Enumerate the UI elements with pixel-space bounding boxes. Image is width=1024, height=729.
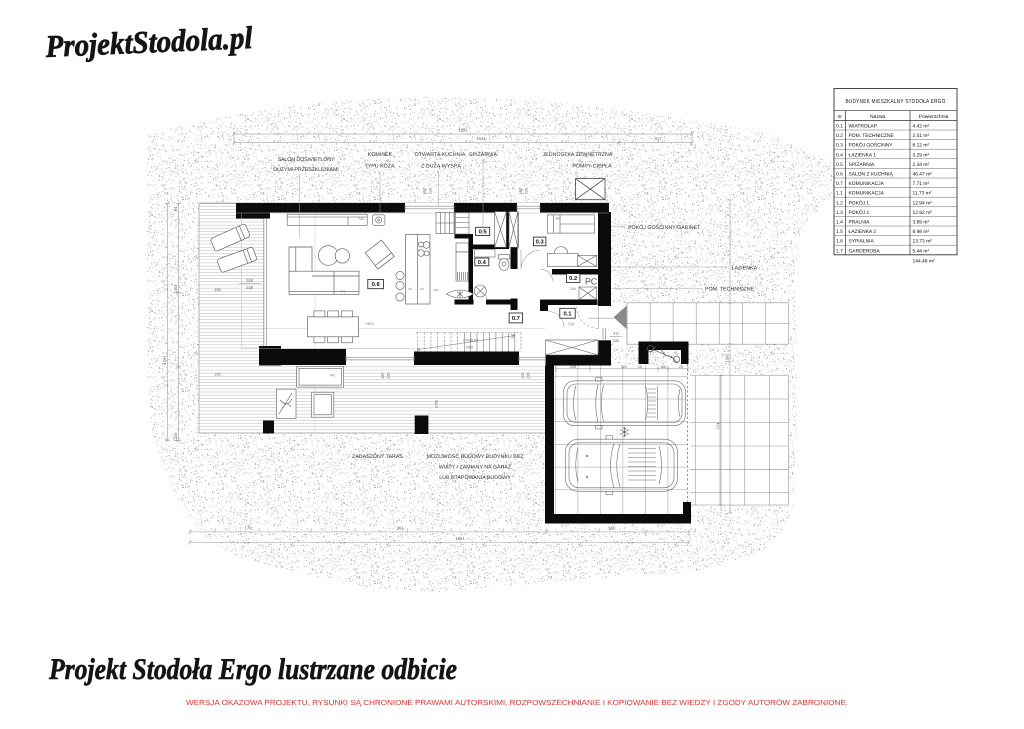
svg-text:0.1: 0.1 (836, 124, 843, 130)
svg-text:303: 303 (555, 217, 561, 221)
svg-text:8.12 m²: 8.12 m² (913, 143, 930, 149)
svg-text:POKÓJ GOŚCINNY: POKÓJ GOŚCINNY (849, 142, 894, 149)
svg-text:521: 521 (621, 365, 627, 369)
svg-text:BUDYNEK MIESZKALNY STODOŁA ERG: BUDYNEK MIESZKALNY STODOŁA ERGO (846, 98, 946, 105)
svg-text:4,0: 4,0 (613, 332, 618, 336)
svg-text:nr: nr (837, 114, 842, 120)
svg-text:1291: 1291 (162, 355, 167, 365)
svg-text:0.6: 0.6 (836, 172, 843, 178)
svg-text:100: 100 (433, 288, 439, 292)
svg-text:OTWARTA KUCHNIA: OTWARTA KUCHNIA (415, 152, 466, 158)
svg-text:2755: 2755 (435, 400, 439, 408)
svg-text:1.5: 1.5 (836, 229, 843, 235)
svg-text:29,5: 29,5 (466, 346, 473, 350)
svg-text:46.47 m²: 46.47 m² (913, 172, 933, 178)
svg-text:749,5: 749,5 (365, 322, 374, 326)
svg-text:1295: 1295 (725, 353, 730, 363)
svg-text:20: 20 (638, 365, 642, 369)
svg-text:144.48 m²: 144.48 m² (913, 259, 935, 265)
svg-text:225: 225 (387, 372, 391, 378)
svg-text:0.7: 0.7 (512, 315, 520, 322)
svg-text:3.89 m²: 3.89 m² (913, 220, 930, 226)
svg-text:Projekt Stodoła Ergo lustrzane: Projekt Stodoła Ergo lustrzane odbicie (48, 653, 457, 686)
svg-text:0.3: 0.3 (536, 239, 545, 246)
svg-text:ŁAZIENKA 1: ŁAZIENKA 1 (849, 152, 877, 158)
svg-text:710: 710 (568, 322, 575, 327)
svg-text:538: 538 (246, 278, 253, 283)
svg-text:1.4: 1.4 (836, 220, 843, 226)
svg-text:JEDNOSTKA ZEWNĘTRZNA: JEDNOSTKA ZEWNĘTRZNA (543, 152, 613, 158)
svg-text:2.34 m²: 2.34 m² (913, 162, 930, 168)
svg-text:POKÓJ 2: POKÓJ 2 (849, 209, 870, 216)
svg-text:5.44 m²: 5.44 m² (913, 248, 930, 254)
svg-text:774: 774 (716, 422, 721, 429)
svg-text:225: 225 (613, 339, 619, 343)
svg-text:225: 225 (525, 188, 529, 194)
svg-text:0.4: 0.4 (836, 152, 843, 158)
svg-text:0.3: 0.3 (836, 143, 843, 149)
svg-text:KOMUNIKACJA: KOMUNIKACJA (849, 181, 885, 187)
svg-text:POM. TECHNICZNE: POM. TECHNICZNE (849, 133, 895, 139)
svg-text:1851: 1851 (455, 536, 465, 541)
svg-text:TYPU KOZA: TYPU KOZA (364, 164, 394, 170)
svg-text:GARDEROBA: GARDEROBA (849, 248, 881, 254)
svg-text:1.3: 1.3 (836, 210, 843, 216)
svg-text:SALON DOŚWIETLONY: SALON DOŚWIETLONY (278, 156, 335, 163)
svg-text:100: 100 (521, 372, 525, 378)
svg-text:SALON Z KUCHNIĄ: SALON Z KUCHNIĄ (849, 172, 894, 178)
svg-text:0.2: 0.2 (569, 275, 577, 282)
svg-text:WERSJA OKAZOWA PROJEKTU, RYSUN: WERSJA OKAZOWA PROJEKTU, RYSUNKI SĄ CHRO… (186, 698, 848, 707)
svg-text:Powierzchnia: Powierzchnia (919, 114, 949, 120)
svg-text:POMPY CIEPŁA: POMPY CIEPŁA (572, 164, 612, 170)
svg-text:17x18,63: 17x18,63 (463, 339, 478, 343)
svg-text:160: 160 (660, 365, 666, 369)
svg-text:MOŻLIWOŚĆ BUDOWY BUDYNKU BEZ: MOŻLIWOŚĆ BUDOWY BUDYNKU BEZ (426, 453, 524, 460)
svg-text:745: 745 (329, 373, 335, 377)
svg-text:1.2: 1.2 (836, 200, 843, 206)
svg-text:LUB ETAPOWANIA BUDOWY: LUB ETAPOWANIA BUDOWY (439, 475, 511, 481)
svg-text:1453: 1453 (173, 284, 178, 294)
svg-text:1415: 1415 (173, 432, 178, 442)
svg-text:200: 200 (423, 188, 427, 194)
svg-text:11.73 m²: 11.73 m² (913, 191, 932, 197)
svg-text:8.98 m²: 8.98 m² (913, 229, 930, 235)
svg-text:1851: 1851 (458, 128, 468, 133)
svg-text:1.7: 1.7 (836, 248, 843, 254)
svg-text:7.71 m²: 7.71 m² (913, 181, 930, 187)
svg-text:40: 40 (408, 287, 412, 291)
svg-text:ZADASZONY TARAS: ZADASZONY TARAS (352, 454, 403, 460)
svg-text:0.7: 0.7 (836, 181, 843, 187)
svg-text:25: 25 (679, 365, 683, 369)
svg-text:317: 317 (655, 136, 663, 141)
svg-text:POKÓJ GOŚCINNY/GABINET: POKÓJ GOŚCINNY/GABINET (628, 224, 701, 231)
svg-text:150: 150 (214, 288, 220, 292)
svg-text:84: 84 (173, 206, 178, 211)
svg-text:180: 180 (519, 188, 523, 194)
svg-text:1.6: 1.6 (836, 239, 843, 245)
svg-text:WIATROŁAP: WIATROŁAP (849, 124, 877, 130)
svg-text:ŁAZIENKA 2: ŁAZIENKA 2 (849, 229, 877, 235)
svg-text:961: 961 (397, 526, 405, 531)
svg-text:209: 209 (570, 287, 576, 291)
svg-text:PRALNIA: PRALNIA (849, 220, 871, 226)
svg-text:4.42 m²: 4.42 m² (913, 124, 930, 130)
svg-text:60: 60 (420, 287, 424, 291)
svg-text:Z DUŻĄ WYSPĄ: Z DUŻĄ WYSPĄ (421, 163, 461, 170)
svg-text:13.73 m²: 13.73 m² (913, 239, 933, 245)
svg-text:0.4: 0.4 (478, 259, 487, 266)
svg-text:287: 287 (381, 372, 385, 378)
svg-text:150: 150 (214, 373, 220, 377)
svg-text:225: 225 (527, 372, 531, 378)
svg-text:KOMUNIKACJA: KOMUNIKACJA (849, 191, 885, 197)
svg-text:SPIŻARNIA: SPIŻARNIA (849, 161, 876, 168)
svg-text:170: 170 (245, 526, 253, 531)
svg-text:POKÓJ 1: POKÓJ 1 (849, 199, 870, 206)
svg-text:0.6: 0.6 (372, 281, 381, 288)
svg-text:POM. TECHNICZNE: POM. TECHNICZNE (705, 287, 755, 293)
svg-text:0.1: 0.1 (563, 310, 572, 317)
svg-text:543: 543 (340, 289, 346, 293)
svg-text:0.2: 0.2 (836, 133, 843, 139)
svg-text:KOMINEK: KOMINEK (368, 152, 393, 158)
svg-text:2.51 m²: 2.51 m² (913, 133, 930, 139)
svg-text:1534: 1534 (476, 136, 486, 141)
svg-text:0.5: 0.5 (836, 162, 843, 168)
svg-text:DUŻYMI PRZESZKLENIAMI: DUŻYMI PRZESZKLENIAMI (273, 166, 338, 173)
svg-text:SYPIALNIA: SYPIALNIA (849, 239, 875, 245)
svg-text:550: 550 (609, 526, 617, 531)
svg-text:12.94 m²: 12.94 m² (913, 200, 933, 206)
svg-text:1.1: 1.1 (836, 191, 843, 197)
svg-text:Nazwa: Nazwa (870, 114, 886, 120)
svg-text:PC: PC (585, 277, 598, 287)
svg-text:ŁAZIENKA: ŁAZIENKA (732, 265, 758, 271)
svg-text:743: 743 (358, 217, 364, 221)
svg-text:3.29 m²: 3.29 m² (913, 152, 930, 158)
svg-text:WIATY / ZAMIANY NA GARAŻ: WIATY / ZAMIANY NA GARAŻ (439, 464, 512, 471)
svg-text:SPIŻARNIA: SPIŻARNIA (469, 151, 497, 158)
svg-text:249: 249 (570, 365, 576, 369)
svg-text:12.92 m²: 12.92 m² (913, 210, 933, 216)
svg-text:225: 225 (429, 188, 433, 194)
